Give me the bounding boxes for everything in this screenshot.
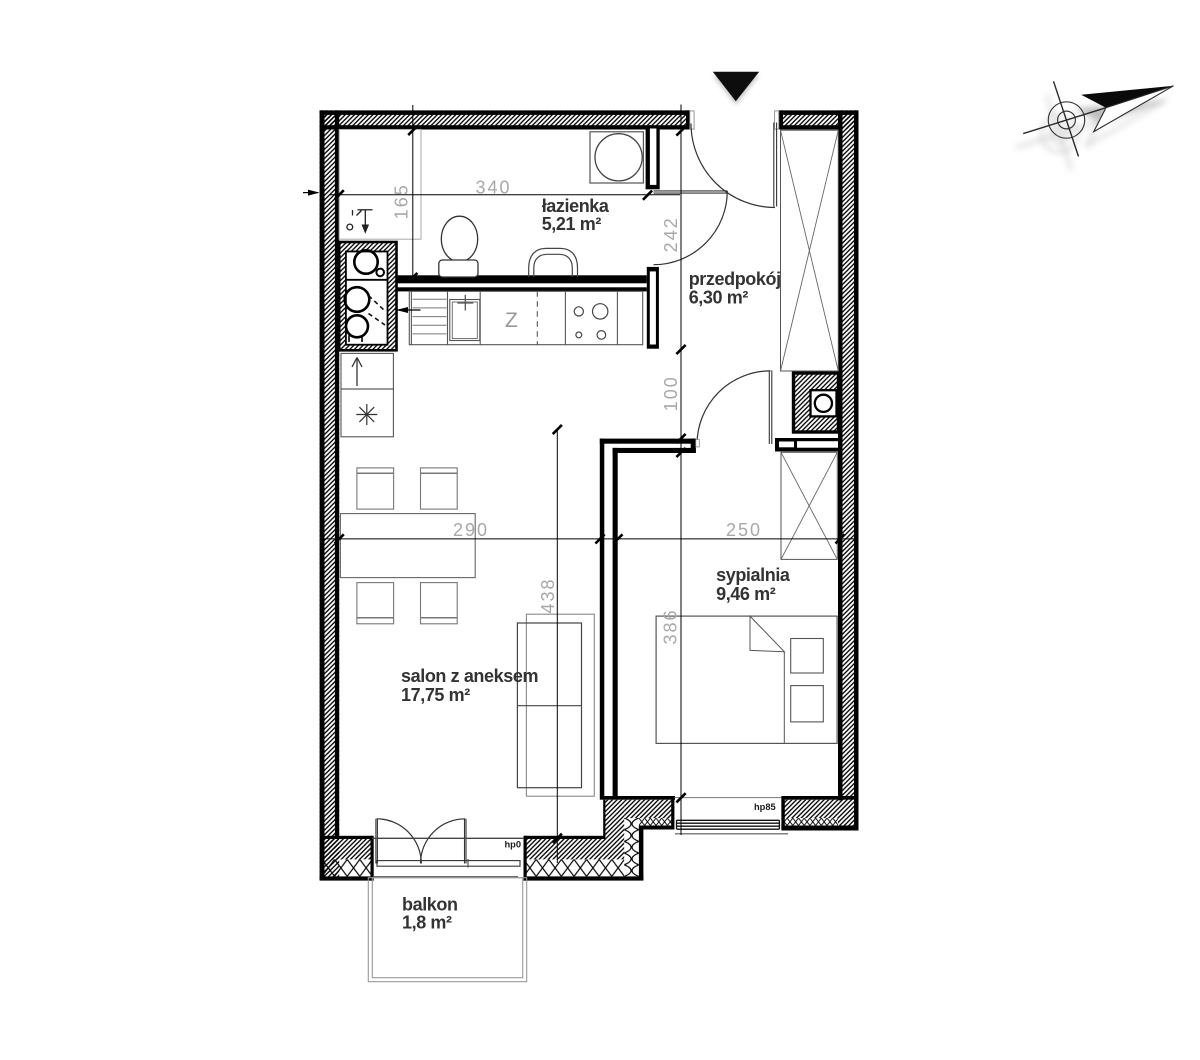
svg-text:1,8 m²: 1,8 m²: [402, 913, 452, 933]
svg-text:5,21 m²: 5,21 m²: [542, 214, 602, 234]
svg-text:przedpokój: przedpokój: [689, 269, 781, 289]
svg-text:balkon: balkon: [402, 894, 458, 914]
svg-text:9,46 m²: 9,46 m²: [716, 584, 776, 604]
svg-text:340: 340: [475, 177, 511, 197]
svg-text:17,75 m²: 17,75 m²: [401, 685, 470, 705]
svg-text:242: 242: [661, 216, 681, 252]
svg-text:6,30 m²: 6,30 m²: [689, 288, 749, 308]
svg-text:salon z aneksem: salon z aneksem: [401, 666, 538, 686]
svg-text:290: 290: [453, 520, 489, 540]
svg-text:165: 165: [392, 183, 412, 219]
svg-text:250: 250: [726, 520, 762, 540]
svg-text:hp85: hp85: [754, 802, 776, 812]
svg-text:sypialnia: sypialnia: [716, 565, 791, 585]
svg-text:hp0: hp0: [505, 840, 522, 850]
svg-text:438: 438: [538, 577, 558, 613]
svg-text:386: 386: [661, 608, 681, 644]
svg-text:Z: Z: [505, 309, 518, 332]
svg-text:łazienka: łazienka: [542, 196, 610, 216]
svg-text:100: 100: [661, 375, 681, 411]
